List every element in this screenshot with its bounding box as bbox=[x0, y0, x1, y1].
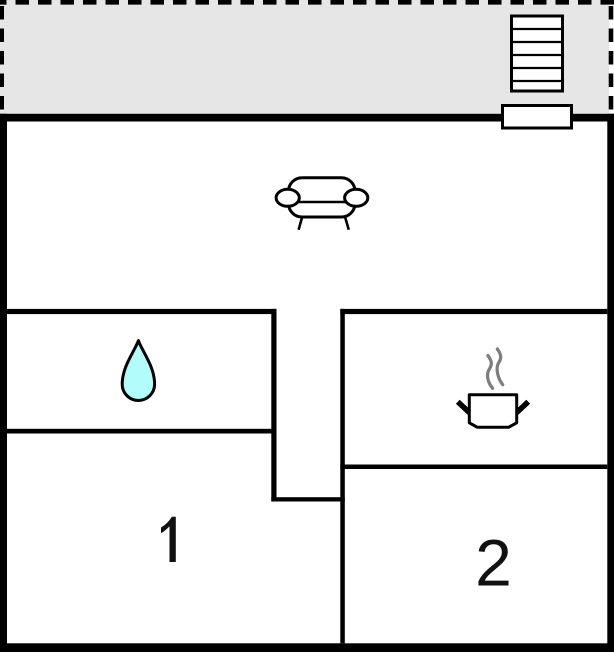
svg-text:2: 2 bbox=[475, 526, 512, 600]
